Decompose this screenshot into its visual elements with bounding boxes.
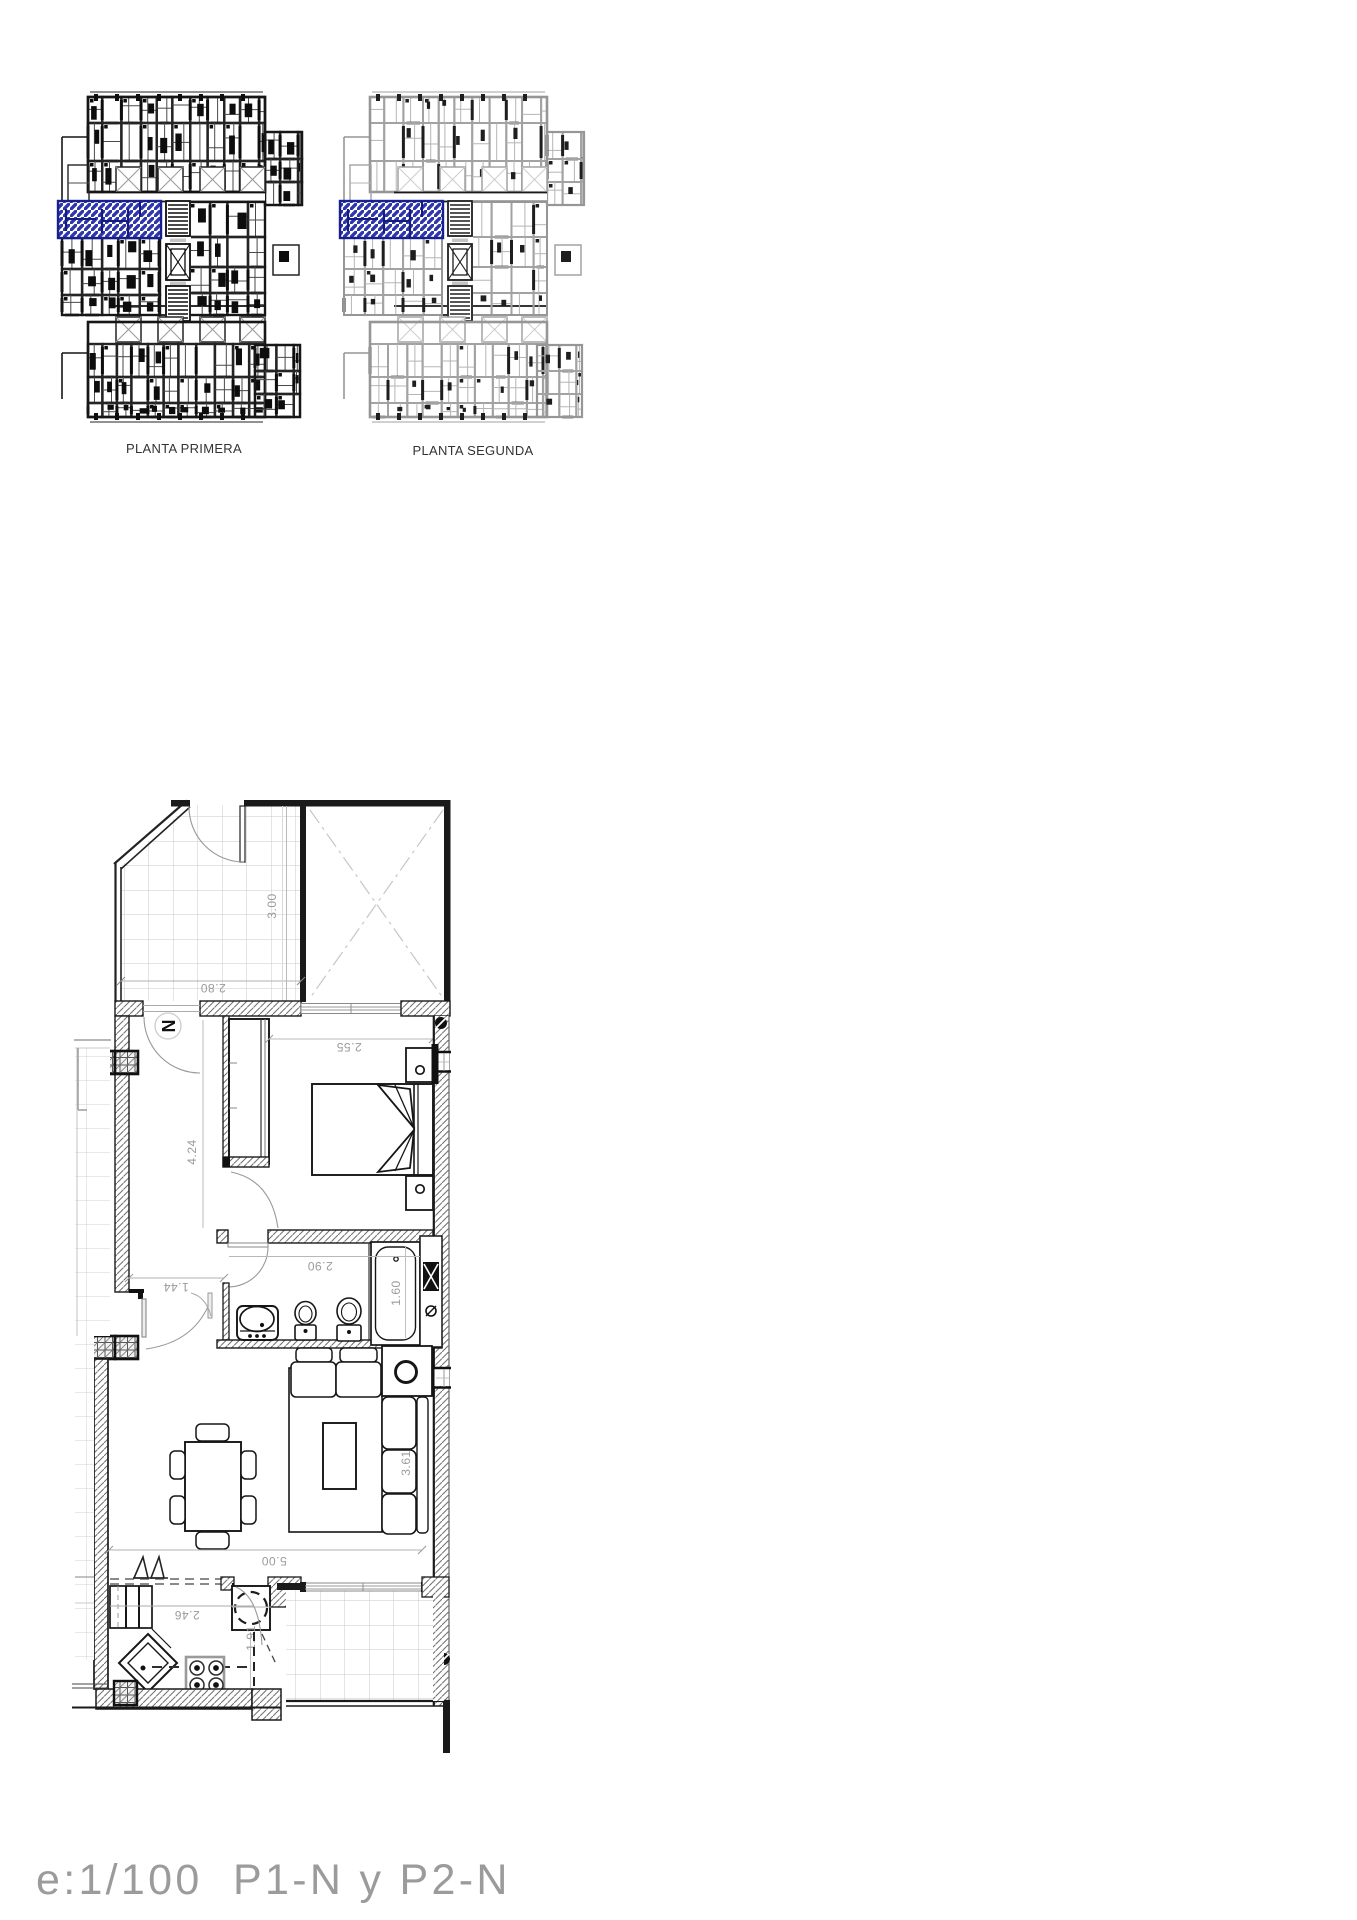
svg-text:2.80: 2.80 bbox=[200, 981, 225, 995]
svg-text:3.00: 3.00 bbox=[265, 893, 279, 918]
svg-text:2.55: 2.55 bbox=[336, 1040, 361, 1054]
svg-text:1.60: 1.60 bbox=[389, 1280, 403, 1305]
svg-text:5.00: 5.00 bbox=[261, 1554, 286, 1568]
svg-text:1.91: 1.91 bbox=[244, 1625, 258, 1650]
svg-text:N: N bbox=[158, 1020, 178, 1033]
svg-text:PLANTA SEGUNDA: PLANTA SEGUNDA bbox=[413, 443, 534, 458]
svg-text:2.90: 2.90 bbox=[307, 1259, 332, 1273]
svg-text:4.24: 4.24 bbox=[185, 1139, 199, 1164]
svg-text:e:1/100 P1-N y P2-N: e:1/100 P1-N y P2-N bbox=[36, 1856, 511, 1904]
svg-text:PLANTA PRIMERA: PLANTA PRIMERA bbox=[126, 441, 242, 456]
svg-text:3.61: 3.61 bbox=[399, 1450, 413, 1475]
svg-text:2.46: 2.46 bbox=[174, 1608, 199, 1622]
svg-text:1.44: 1.44 bbox=[163, 1280, 188, 1294]
